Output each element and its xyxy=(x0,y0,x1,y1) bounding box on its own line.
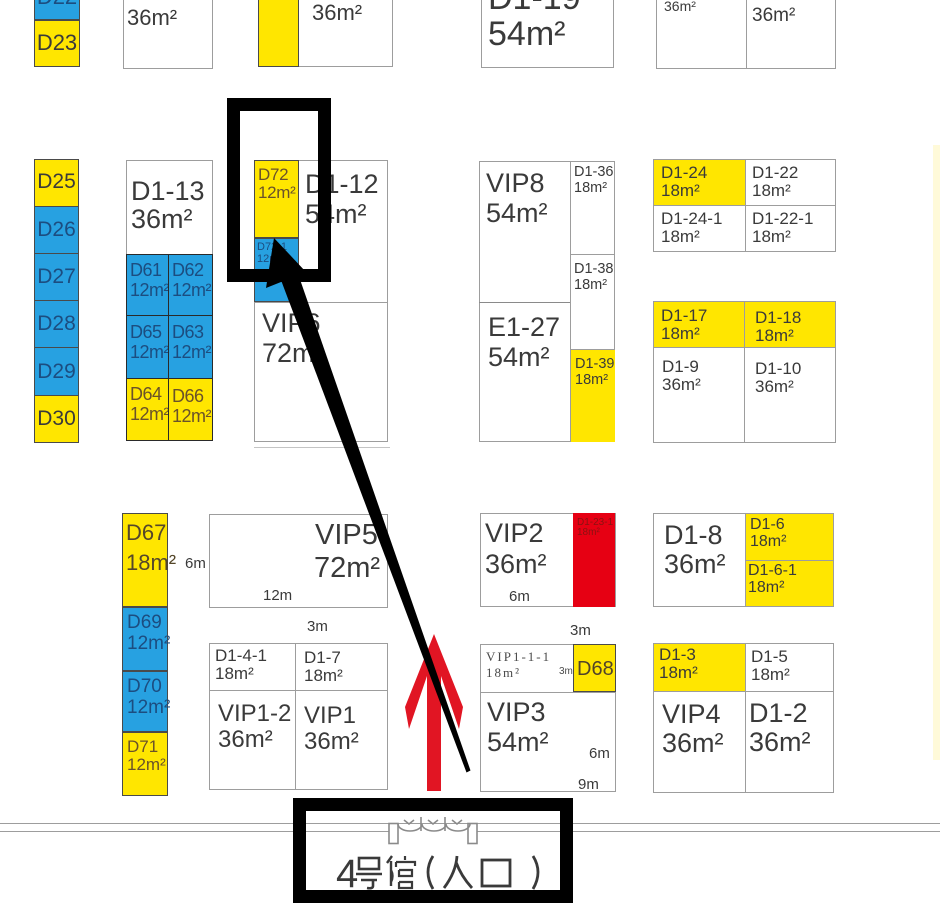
svg-text:4: 4 xyxy=(336,852,358,896)
